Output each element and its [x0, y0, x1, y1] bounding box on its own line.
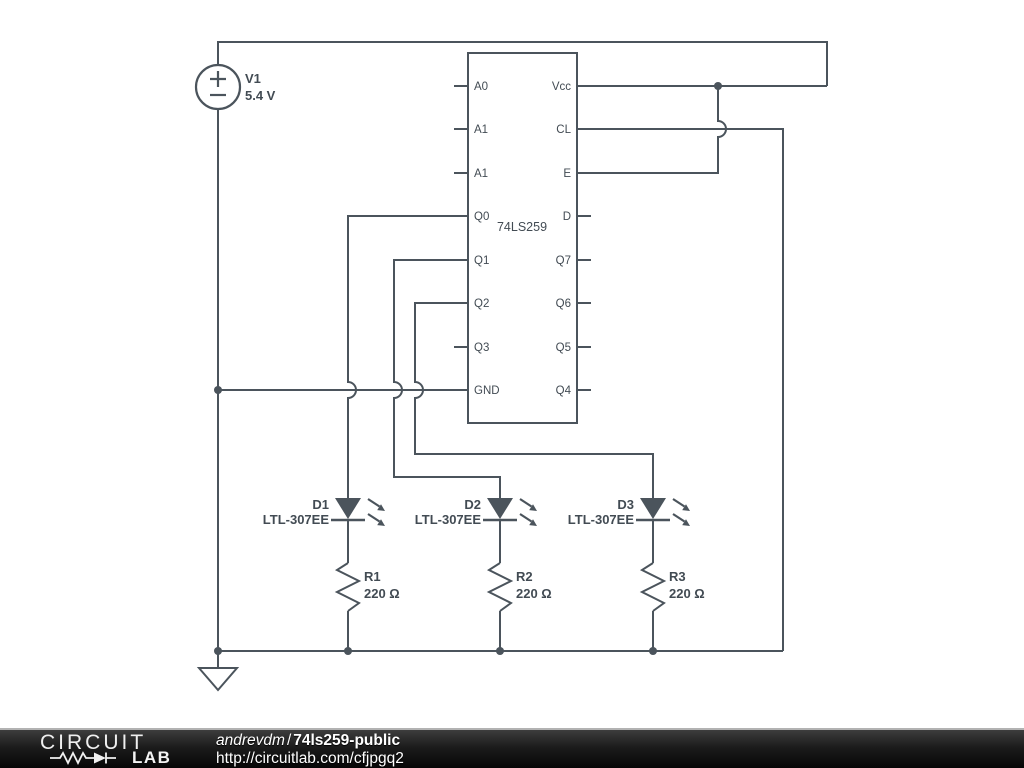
- led-part: LTL-307EE: [415, 512, 482, 527]
- circuit-schematic: V1 5.4 V 74LS259 A0 A1 A1 Q0 Q1 Q2 Q3 GN…: [0, 0, 1024, 730]
- resistor-value: 220 Ω: [669, 586, 705, 601]
- led-triangle-icon: [640, 498, 666, 519]
- pin-label-q4: Q4: [556, 385, 572, 397]
- led-name: D3: [617, 497, 634, 512]
- pin-label-a0: A0: [474, 81, 488, 93]
- resistor-name: R2: [516, 569, 533, 584]
- led-d3[interactable]: D3 LTL-307EE: [568, 497, 690, 527]
- led-triangle-icon: [487, 498, 513, 519]
- ic-body: [468, 53, 577, 423]
- resistor-value: 220 Ω: [364, 586, 400, 601]
- pin-label-q6: Q6: [556, 298, 571, 310]
- ic-74ls259[interactable]: 74LS259 A0 A1 A1 Q0 Q1 Q2 Q3 GND Vcc CL …: [468, 53, 577, 423]
- resistor-r3[interactable]: R3 220 Ω: [642, 520, 705, 651]
- credits-line1: andrevdm/74ls259-public: [216, 732, 404, 750]
- light-emission-arrows-icon: [520, 499, 537, 526]
- pin-label-q1: Q1: [474, 255, 489, 267]
- led-triangle-icon: [335, 498, 361, 519]
- pin-label-d: D: [563, 211, 571, 223]
- resistor-zigzag-icon: [489, 563, 511, 611]
- pin-label-vcc: Vcc: [552, 81, 571, 93]
- led-name: D2: [464, 497, 481, 512]
- resistor-zigzag-icon: [642, 563, 664, 611]
- footer-credits: andrevdm/74ls259-public http://circuitla…: [216, 732, 404, 767]
- pin-label-a1b: A1: [474, 168, 488, 180]
- light-emission-arrows-icon: [673, 499, 690, 526]
- led-part: LTL-307EE: [263, 512, 330, 527]
- ic-label: 74LS259: [497, 220, 547, 234]
- pin-label-q7: Q7: [556, 255, 571, 267]
- resistor-zigzag-icon: [337, 563, 359, 611]
- voltage-source-value: 5.4 V: [245, 88, 276, 103]
- logo-resistor-diode-icon: [40, 751, 130, 765]
- led-d1[interactable]: D1 LTL-307EE: [263, 497, 385, 527]
- pin-label-q0: Q0: [474, 211, 489, 223]
- pin-label-e: E: [563, 168, 571, 180]
- schematic-canvas: V1 5.4 V 74LS259 A0 A1 A1 Q0 Q1 Q2 Q3 GN…: [0, 0, 1024, 730]
- credits-url: http://circuitlab.com/cfjpgq2: [216, 750, 404, 768]
- resistor-name: R1: [364, 569, 381, 584]
- pin-label-q5: Q5: [556, 342, 571, 354]
- pin-label-cl: CL: [556, 124, 571, 136]
- resistor-name: R3: [669, 569, 686, 584]
- voltage-source-v1[interactable]: V1 5.4 V: [196, 65, 276, 109]
- credits-separator: /: [285, 732, 293, 749]
- pin-label-q2: Q2: [474, 298, 489, 310]
- ground-triangle-icon: [199, 668, 237, 690]
- pin-label-a1: A1: [474, 124, 488, 136]
- junction-dot: [714, 82, 722, 90]
- led-d2[interactable]: D2 LTL-307EE: [415, 497, 537, 527]
- resistor-value: 220 Ω: [516, 586, 552, 601]
- pin-label-q3: Q3: [474, 342, 489, 354]
- circuitlab-logo: CIRCUIT LAB: [40, 733, 171, 768]
- voltage-source-name: V1: [245, 71, 261, 86]
- ground-symbol[interactable]: [199, 651, 237, 690]
- footer-bar: CIRCUIT LAB andrevdm/74ls259-public http…: [0, 728, 1024, 768]
- project-name: 74ls259-public: [293, 732, 400, 749]
- logo-lab-text: LAB: [132, 748, 171, 768]
- light-emission-arrows-icon: [368, 499, 385, 526]
- author-name: andrevdm: [216, 732, 285, 749]
- resistor-r1[interactable]: R1 220 Ω: [337, 520, 400, 651]
- junction-dot: [214, 386, 222, 394]
- led-name: D1: [312, 497, 329, 512]
- pin-label-gnd: GND: [474, 385, 500, 397]
- led-part: LTL-307EE: [568, 512, 635, 527]
- resistor-r2[interactable]: R2 220 Ω: [489, 520, 552, 651]
- wire-q0: [348, 216, 468, 498]
